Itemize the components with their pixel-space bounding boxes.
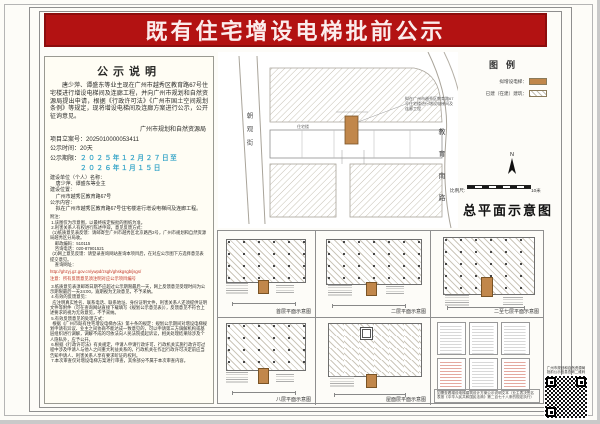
site-plan-drawing <box>218 52 458 228</box>
document-thumbnail <box>437 358 466 391</box>
document-thumbnail <box>469 322 498 355</box>
plan-caption: 二至七层平面示意图 <box>494 308 539 315</box>
legend-item-existing: 已建（在建）建筑： <box>465 90 547 97</box>
scale-bar: 比例尺: 0 1 3 5 10米 <box>450 186 550 194</box>
elevator-swatch-icon <box>529 78 547 85</box>
plan-caption: 二层平面示意图 <box>391 308 426 315</box>
scale-end-label: 10米 <box>531 188 541 194</box>
period-line: 公示期限：２０２５年１２月２７日至 ２０２６年１月１５日 <box>50 154 208 173</box>
plan-caption: 屋面层平面示意图 <box>386 396 426 403</box>
floor-plan-panel-2-7f: 二至七层平面示意图 <box>431 231 543 318</box>
documents-caption: 如需查看增设电梯建筑设计方案公示说明文本（业主表决签名表按《中华人民共和国民法典… <box>434 389 540 403</box>
period-start: ２０２５年１２月２７日至 <box>80 155 178 162</box>
notice-heading: 公示说明 <box>50 63 208 79</box>
document-thumbnail <box>501 322 530 355</box>
north-arrow-icon: N <box>504 152 520 181</box>
plan-caption: 八层平面示意图 <box>276 396 311 403</box>
floor-plan-panel-8f: 八层平面示意图 <box>218 318 316 405</box>
street-label-chaoguan: 朝观街 <box>243 112 253 153</box>
legend-item-elevator: 拟增设电梯： <box>465 78 547 85</box>
proposed-elevator-marker <box>345 116 358 144</box>
street-label-jiaoyu-south: 教育南路 <box>436 128 446 216</box>
documents-panel: 如需查看增设电梯建筑设计方案公示说明文本（业主表决签名表按《中华人民共和国民法典… <box>431 318 543 405</box>
case-number-value: 2025010000053411 <box>86 137 139 143</box>
scale-ticks: 0 1 3 5 <box>467 186 529 194</box>
floor-plan-panel-2f: 二层平面示意图 <box>316 231 431 318</box>
hatched-swatch-icon <box>529 90 547 97</box>
site-plan-caption: 总平面示意图 <box>458 200 558 219</box>
authority-signature: 广州市规划和自然资源局 <box>50 124 206 133</box>
notes-part1: 附注： 1.该图仅为示意图，以最终核定报批的图纸为准。 2.利害关系人有权进行陈… <box>50 214 208 267</box>
plan-caption: 首层平面示意图 <box>276 308 311 315</box>
period-end: ２０２６年１月１５日 <box>50 164 208 173</box>
notice-paragraph: 唐少萍、谭盛东等业主现在广州市越秀区教育路67号住宅楼进行增设电梯间及连廊工程，… <box>50 83 208 122</box>
feedback-url: http://ghzyj.gz.gov.cn/ywpd/zsgh/ghskgsg… <box>50 269 208 274</box>
floor-plans-grid: 首层平面示意图 二层平面示意图 二至七层平面示意图 八层平面示意图 <box>217 230 544 404</box>
floor-plan-panel-1f: 首层平面示意图 <box>218 231 316 318</box>
legend-item-label: 已建（在建）建筑： <box>486 91 527 97</box>
legend-item-label: 拟增设电梯： <box>499 79 527 85</box>
document-thumbnail <box>501 358 530 391</box>
case-number-label: 项目立案号： <box>50 137 86 143</box>
legend-title: 图例 <box>465 58 547 71</box>
qr-caption-line2: 批前公示信息查询二维码 <box>538 370 594 374</box>
qr-code <box>544 375 588 419</box>
document-thumbnails <box>437 322 537 391</box>
notes-part2: 3.纸质意见表须邮寄日期不应超过公示期限最后一天，网上反馈意见受理时间为公示期限… <box>50 284 208 363</box>
scale-label: 比例尺: <box>450 188 465 194</box>
notice-sheet: 既有住宅增设电梯批前公示 公示说明 唐少萍、谭盛东等业主现在广州市越秀区教育路6… <box>0 0 597 420</box>
qr-block: 广州市规划和自然资源局 批前公示信息查询二维码 <box>538 366 594 419</box>
case-number-line: 项目立案号：2025010000053411 <box>50 136 208 145</box>
page-title: 既有住宅增设电梯批前公示 <box>44 13 547 47</box>
period-label: 公示期限： <box>50 156 80 162</box>
duration-label: 公示时间： <box>50 146 80 152</box>
project-info: 建设单位（个人）名称： 唐少萍、谭盛东等业主 建设位置： 广州市越秀区教育路67… <box>50 175 208 212</box>
site-plan-annotation: 拟在广州市越秀区教育路67号住宅楼进行增设电梯间及连廊工程 <box>405 97 455 111</box>
floor-plan-panel-roof: 屋面层平面示意图 <box>316 318 431 405</box>
duration-value: 20天 <box>80 146 93 152</box>
document-thumbnail <box>437 322 466 355</box>
legend-panel: 图例 拟增设电梯： 已建（在建）建筑： <box>465 58 547 102</box>
duration-line: 公示时间：20天 <box>50 145 208 154</box>
feedback-warning: 注意：所有反馈意见须注明对应公示项目编号 <box>50 276 208 281</box>
notice-panel: 公示说明 唐少萍、谭盛东等业主现在广州市越秀区教育路67号住宅楼进行增设电梯间及… <box>44 56 214 404</box>
building-label: 住宅楼 <box>297 125 323 130</box>
document-thumbnail <box>469 358 498 391</box>
